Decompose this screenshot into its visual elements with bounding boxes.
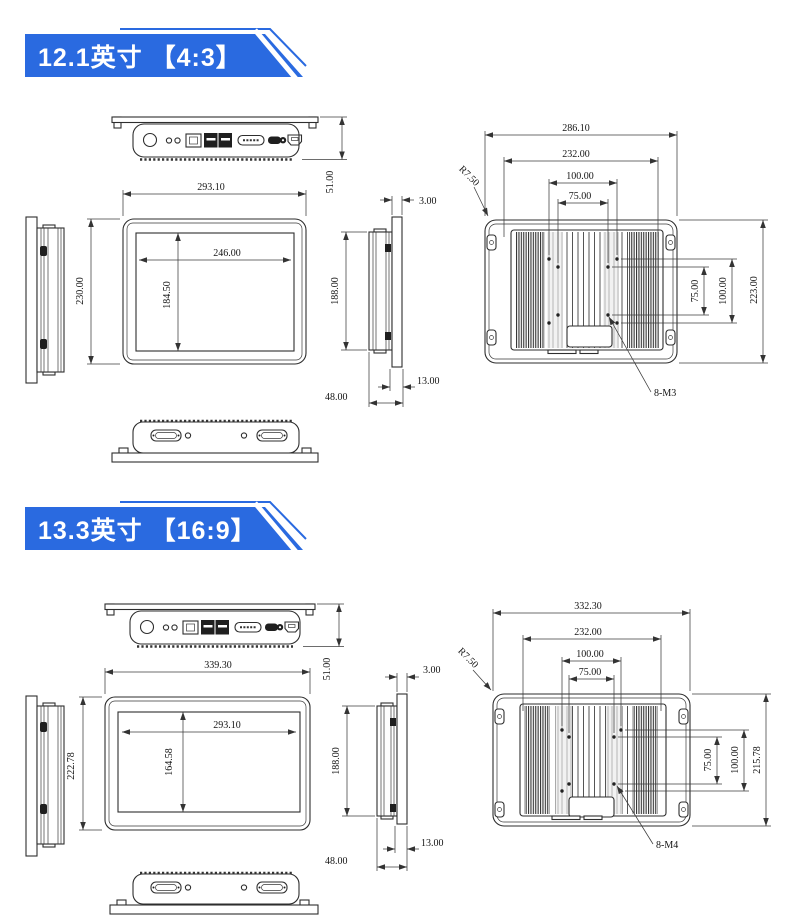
label-plate [567, 326, 612, 347]
banner-label: 13.3英寸 【16:9】 [38, 517, 257, 545]
banner-label: 12.1英寸 【4:3】 [38, 44, 242, 72]
dim-panel-thickness: 3.00 [419, 196, 437, 207]
bottom-view-12 [112, 421, 318, 462]
screw-boss-icon [385, 244, 391, 252]
dim-body-depth: 48.00 [325, 856, 348, 867]
size-banner-13-3: 13.3英寸 【16:9】 [25, 500, 307, 553]
dim-mount-depth: 13.00 [417, 376, 440, 387]
dim-rear-inner-width: 232.00 [562, 149, 590, 160]
front-view-12: 246.00 184.50 293.10 230.00 [75, 182, 306, 364]
dim-mount-depth: 13.00 [421, 838, 444, 849]
screw-boss-icon [40, 722, 47, 732]
dim-rear-outer-height: 223.00 [749, 276, 760, 304]
dim-vesa-width-100: 100.00 [576, 649, 604, 660]
dim-vesa-height-75: 75.00 [703, 749, 714, 772]
dim-vesa-width-75: 75.00 [569, 191, 592, 202]
dim-rear-outer-width: 286.10 [562, 123, 590, 134]
size-banner-12-1: 12.1英寸 【4:3】 [25, 27, 307, 80]
screw-boss-icon [385, 332, 391, 340]
dim-corner-radius: R7.50 [456, 164, 481, 189]
screw-spec-label: 8-M3 [654, 388, 676, 399]
screw-boss-icon [390, 718, 396, 726]
dim-display-height: 164.58 [164, 748, 175, 776]
product-dimension-sheet: 12.1英寸 【4:3】 [0, 0, 790, 924]
screw-boss-icon [40, 246, 47, 256]
screw-spec-label: 8-M4 [656, 840, 678, 851]
screw-boss-icon [40, 804, 47, 814]
dim-display-width: 246.00 [213, 248, 241, 259]
label-plate [569, 797, 614, 817]
dim-total-thickness: 51.00 [325, 171, 336, 194]
bottom-view-13 [110, 873, 318, 914]
dim-outer-height: 222.78 [66, 752, 77, 780]
front-view-13: 293.10 164.58 339.30 222.78 [66, 660, 310, 830]
drawing-sheet-13-3: 51.00 293.10 164.58 339.30 [0, 554, 790, 924]
rear-view-13: R7.50 [455, 601, 771, 851]
screw-boss-icon [40, 339, 47, 349]
dim-corner-radius: R7.50 [455, 646, 480, 671]
dc-connector-icon [268, 137, 286, 145]
dim-outer-width: 293.10 [197, 182, 225, 193]
side-view-left-12 [26, 217, 64, 383]
dim-body-depth: 48.00 [325, 392, 348, 403]
dim-display-width: 293.10 [213, 720, 241, 731]
dim-outer-height: 230.00 [75, 277, 86, 305]
dim-vesa-width-75: 75.00 [579, 667, 602, 678]
dim-panel-thickness: 3.00 [423, 665, 441, 676]
dim-vesa-height-75: 75.00 [690, 280, 701, 303]
dim-vesa-height-100: 100.00 [730, 746, 741, 774]
dim-body-height: 188.00 [331, 747, 342, 775]
dim-vesa-height-100: 100.00 [718, 277, 729, 305]
rear-view-12: R7.50 [456, 123, 768, 399]
top-view-12: 51.00 [112, 117, 347, 193]
dim-display-height: 184.50 [162, 281, 173, 309]
dim-rear-outer-height: 215.78 [752, 746, 763, 774]
dim-outer-width: 339.30 [204, 660, 232, 671]
dim-total-thickness: 51.00 [322, 658, 333, 681]
dim-vesa-width-100: 100.00 [566, 171, 594, 182]
side-view-right-12: 3.00 188.00 13.00 48.00 [325, 196, 440, 407]
dim-body-height: 188.00 [330, 277, 341, 305]
side-view-left-13 [26, 696, 64, 856]
dc-connector-icon [265, 624, 283, 632]
screw-boss-icon [390, 804, 396, 812]
drawing-sheet-12-1: 51.00 246.00 184.50 293.10 [0, 85, 790, 485]
dim-rear-inner-width: 232.00 [574, 627, 602, 638]
side-view-right-13: 3.00 188.00 13.00 48.00 [325, 665, 444, 871]
dim-rear-outer-width: 332.30 [574, 601, 602, 612]
